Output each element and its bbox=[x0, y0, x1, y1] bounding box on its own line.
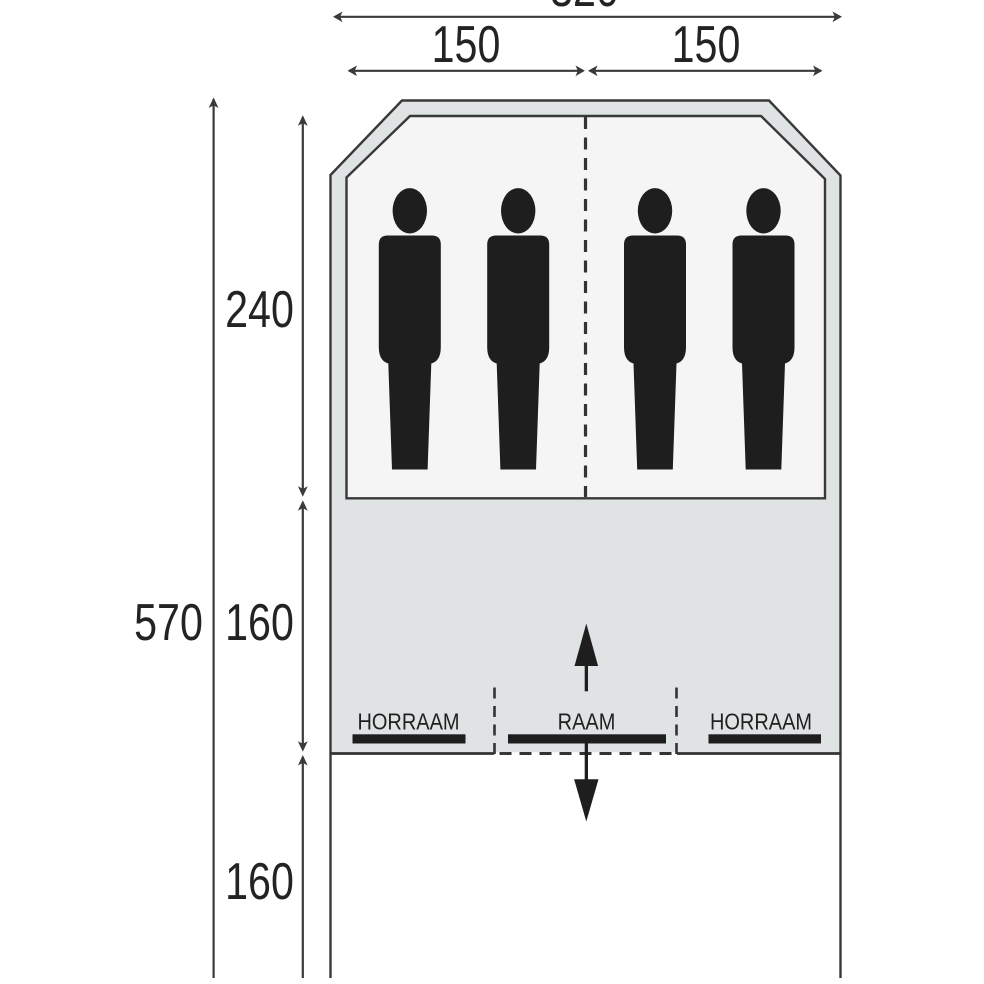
svg-text:160: 160 bbox=[225, 853, 294, 910]
svg-text:150: 150 bbox=[432, 16, 501, 73]
svg-text:570: 570 bbox=[134, 594, 203, 651]
svg-text:HORRAAM: HORRAAM bbox=[710, 708, 812, 735]
svg-text:160: 160 bbox=[225, 594, 294, 651]
svg-text:150: 150 bbox=[672, 16, 741, 73]
svg-text:320: 320 bbox=[550, 0, 619, 17]
svg-text:240: 240 bbox=[225, 281, 294, 338]
svg-text:RAAM: RAAM bbox=[558, 708, 616, 735]
svg-text:HORRAAM: HORRAAM bbox=[357, 708, 459, 735]
